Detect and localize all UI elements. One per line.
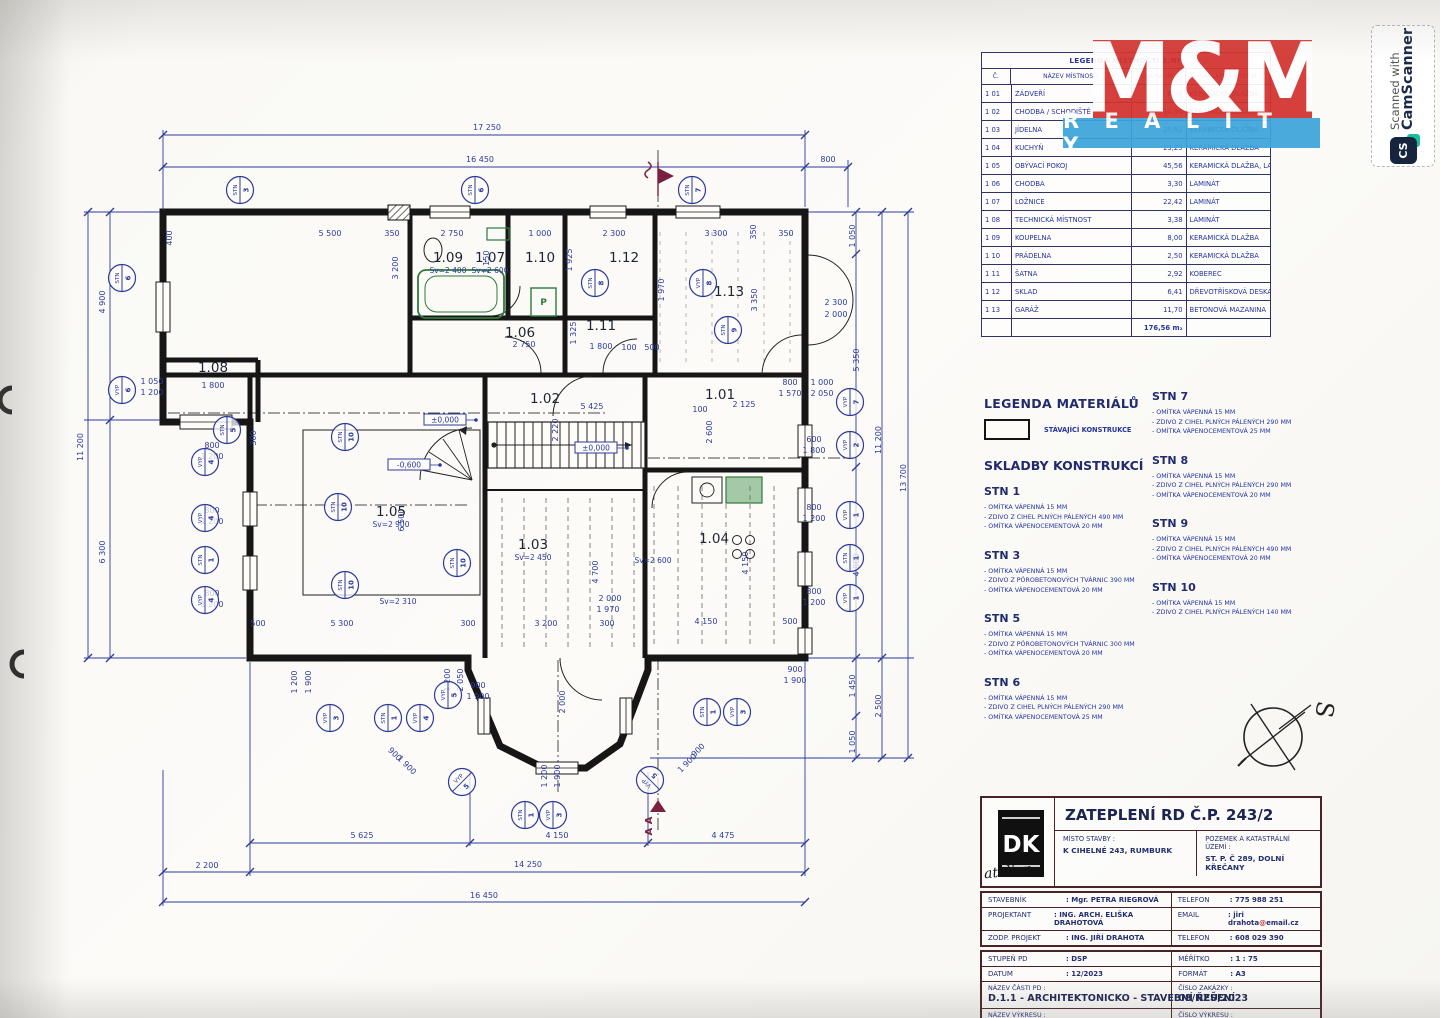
svg-text:VYP: VYP [198, 512, 204, 523]
dimension-label: 800 [782, 378, 797, 387]
designer-label: PROJEKTANT [988, 911, 1054, 927]
svg-text:1: 1 [208, 557, 216, 562]
svg-text:STN: STN [843, 552, 849, 563]
layer-name: STN 7 [1152, 390, 1342, 403]
opening-marker: VYP8 [690, 270, 717, 297]
opening-marker: VYP4 [192, 449, 219, 476]
svg-text:6: 6 [125, 275, 133, 280]
opening-marker: VYP5 [631, 761, 669, 799]
construction-layer-item: STN 8- OMÍTKA VÁPENNÁ 15 MM- ZDIVO Z CIH… [1152, 454, 1342, 501]
dimension-label: 2 300 [825, 298, 848, 307]
site-value: K CIHELNÉ 243, RUMBURK [1063, 846, 1188, 855]
email-value: : jiri drahota@email.cz [1228, 911, 1314, 927]
table-row: 1 05OBÝVACÍ POKOJ45,56KERAMICKÁ DLAŽBA, … [982, 157, 1270, 175]
dimension-label: 1 200 [803, 598, 826, 607]
dimension-label: 2 300 [603, 229, 626, 238]
room-height-label: Sv=2 400 [430, 266, 467, 275]
dimension-label: 6 300 [98, 541, 107, 564]
svg-text:STN: STN [331, 501, 337, 512]
construction-layer-item: STN 5- OMÍTKA VÁPENNÁ 15 MM- ZDIVO Z PÓR… [984, 612, 1149, 659]
height-note: Sv=2 600 [635, 556, 672, 565]
svg-text:2: 2 [853, 442, 861, 447]
parcel-label: POZEMEK A KATASTRÁLNÍ ÚZEMÍ : [1205, 835, 1312, 851]
dimension-label: 4 700 [591, 561, 600, 584]
dimension-label: 16 450 [470, 891, 498, 900]
table-row: 1 10PRÁDELNA2,50KERAMICKÁ DLAŽBA [982, 247, 1270, 265]
dimension-label: 13 700 [899, 464, 908, 492]
camscanner-text: CamScanner [1401, 28, 1417, 130]
client-label: STAVEBNÍK [988, 896, 1066, 904]
svg-text:VYP: VYP [413, 712, 419, 723]
svg-text:10: 10 [348, 580, 356, 590]
dimension-label: 4 150 [695, 617, 718, 626]
existing-construction-label: STÁVAJÍCÍ KONSTRUKCE [1044, 426, 1131, 434]
dimension-label: 5 625 [351, 831, 374, 840]
svg-text:STN: STN [518, 809, 524, 820]
dimension-label: 1 800 [803, 446, 826, 455]
svg-text:7: 7 [695, 187, 703, 192]
dimension-label: 1 900 [395, 754, 418, 777]
svg-text:STN: STN [115, 272, 121, 283]
svg-text:VYP: VYP [843, 439, 849, 450]
svg-text:STN: STN [450, 557, 456, 568]
table-row: 1 07LOŽNICE22,42LAMINÁT [982, 193, 1270, 211]
dimension-label: 2 000 [825, 310, 848, 319]
opening-marker: VYP6 [109, 377, 136, 404]
camscanner-icon: CS [1390, 137, 1417, 164]
room-label: 1.07 [475, 250, 505, 266]
height-note: Sv=2 310 [380, 597, 417, 606]
dimension-label: 2 220 [551, 419, 560, 442]
svg-text:7: 7 [853, 399, 861, 404]
dimension-label: 3 200 [535, 619, 558, 628]
svg-text:4: 4 [208, 515, 216, 520]
part-name-value: D.1.1 - ARCHITEKTONICKO - STAVEBNÍ ŘEŠEN… [988, 993, 1165, 1004]
level-label: ±0,000 [431, 416, 459, 425]
wall-marker: STN3 [227, 177, 254, 204]
svg-text:VYP: VYP [115, 384, 121, 395]
table-row: 1 06CHODBA3,30LAMINÁT [982, 175, 1270, 193]
dimension-label: 2 750 [441, 229, 464, 238]
project-title: ZATEPLENÍ RD Č.P. 243/2 [1055, 798, 1320, 831]
svg-text:4: 4 [208, 597, 216, 602]
north-label: S [1309, 699, 1339, 720]
dimension-label: 5 350 [852, 349, 861, 372]
boiler-symbol: P [540, 298, 547, 308]
wall-marker: STN1 [375, 705, 402, 732]
svg-text:10: 10 [348, 432, 356, 442]
room-label: 1.04 [699, 531, 729, 547]
opening-marker: VYP3 [724, 699, 751, 726]
reality-text: R E A L I T Y [1063, 109, 1320, 157]
dimension-label: 1 050 [848, 225, 857, 248]
construction-layer-item: STN 3- OMÍTKA VÁPENNÁ 15 MM- ZDIVO Z PÓR… [984, 549, 1149, 596]
dimension-label: 4 150 [546, 831, 569, 840]
dimension-label: 2 050 [811, 389, 834, 398]
svg-text:5: 5 [451, 692, 459, 697]
room-label: 1.05 [376, 504, 406, 520]
format-label: FORMÁT [1178, 970, 1230, 978]
dimension-label: 5 425 [581, 402, 604, 411]
dimension-label: 1 050 [141, 377, 164, 386]
dimension-label: 1 200 [540, 765, 549, 788]
svg-text:STN: STN [220, 424, 226, 435]
wall-marker: STN1 [192, 547, 219, 574]
dimension-label: 1 900 [553, 765, 562, 788]
dimension-label: 100 [621, 343, 636, 352]
dimension-label: 3 350 [750, 289, 759, 312]
format-value: : A3 [1230, 970, 1246, 978]
dimension-label: 3 200 [391, 257, 400, 280]
resp-designer-label: ZODP. PROJEKT [988, 934, 1066, 942]
room-label: 1.10 [525, 250, 555, 266]
construction-layer-item: STN 9- OMÍTKA VÁPENNÁ 15 MM- ZDIVO Z CIH… [1152, 517, 1342, 564]
dimension-label: 5 500 [319, 229, 342, 238]
drawing-number-label: ČÍSLO VÝKRESU : [1178, 1011, 1314, 1018]
svg-text:VYP: VYP [843, 396, 849, 407]
wall-marker: STN1 [837, 545, 864, 572]
svg-text:4: 4 [208, 459, 216, 464]
mm-reality-banner: R E A L I T Y [1063, 118, 1320, 148]
construction-layer-item: STN 7- OMÍTKA VÁPENNÁ 15 MM- ZDIVO Z CIH… [1152, 390, 1342, 437]
svg-text:VYP: VYP [323, 712, 329, 723]
layer-name: STN 1 [984, 485, 1149, 498]
dimension-label: 3 300 [705, 229, 728, 238]
room-label: 1.03 [518, 537, 548, 553]
table-row: 1 09KOUPELNA8,00KERAMICKÁ DLAŽBA [982, 229, 1270, 247]
opening-marker: VYP5 [443, 763, 481, 801]
order-number-label: ČÍSLO ZAKÁZKY : [1178, 984, 1314, 992]
dimension-label: 800 [806, 587, 821, 596]
construction-layer-item: STN 1- OMÍTKA VÁPENNÁ 15 MM- ZDIVO Z CIH… [984, 485, 1149, 532]
wall-marker: STN5 [214, 417, 241, 444]
mm-logo-text: M&M [1093, 42, 1312, 116]
section-letter: A A [644, 816, 655, 835]
order-number-value: 08/NZÚ/2023 [1178, 993, 1314, 1004]
room-label: 1.12 [609, 250, 639, 266]
svg-text:10: 10 [460, 558, 468, 568]
svg-text:STN: STN [338, 579, 344, 590]
title-block: DK atelier ZATEPLENÍ RD Č.P. 243/2 MÍSTO… [980, 796, 1322, 1018]
level-label: ±0,000 [582, 444, 610, 453]
layer-name: STN 6 [984, 676, 1149, 689]
room-label: 1.06 [505, 325, 535, 341]
punch-holes [0, 388, 24, 676]
materials-legend-title: LEGENDA MATERIÁLŮ [984, 396, 1139, 411]
designer-value: : ING. ARCH. ELIŠKA DRAHOTOVÁ [1054, 911, 1165, 927]
dimension-label: 350 [778, 229, 793, 238]
wall-marker: STN9 [715, 317, 742, 344]
svg-text:STN: STN [685, 184, 691, 195]
opening-marker: VYP3 [317, 705, 344, 732]
dimension-label: 800 [806, 503, 821, 512]
construction-layers-title: SKLADBY KONSTRUKCÍ [984, 458, 1149, 473]
opening-marker: VYP7 [837, 389, 864, 416]
svg-text:STN: STN [198, 554, 204, 565]
wall-marker: STN1 [512, 802, 539, 829]
svg-text:3: 3 [556, 812, 564, 817]
scale-label: MĚŘÍTKO [1178, 955, 1230, 963]
dimension-label: 300 [460, 619, 475, 628]
dimension-label: 300 [249, 430, 258, 445]
room-label: 1.09 [433, 250, 463, 266]
drawing-name-label: NÁZEV VÝKRESU : [988, 1011, 1165, 1018]
site-label: MÍSTO STAVBY : [1063, 835, 1188, 843]
dimension-label: 2 000 [599, 594, 622, 603]
dimension-label: 1 200 [141, 388, 164, 397]
svg-text:1: 1 [853, 512, 861, 517]
materials-legend: LEGENDA MATERIÁLŮ STÁVAJÍCÍ KONSTRUKCE [984, 396, 1139, 440]
svg-text:STN: STN [468, 184, 474, 195]
dk-atelier-script: atelier [983, 862, 1031, 883]
dimension-label: 2 600 [705, 421, 714, 444]
svg-text:VYP: VYP [198, 594, 204, 605]
mm-reality-logo: M&M [1093, 40, 1312, 118]
dimension-label: 2 125 [733, 400, 756, 409]
section-marks: A A [644, 162, 674, 835]
resp-designer-value: : ING. JIŘÍ DRAHOTA [1066, 934, 1144, 942]
layer-name: STN 8 [1152, 454, 1342, 467]
dimension-label: 900 [787, 665, 802, 674]
dimension-label: 1 970 [597, 605, 620, 614]
layer-name: STN 10 [1152, 581, 1342, 594]
svg-text:VYP: VYP [546, 809, 552, 820]
dimension-label: 500 [782, 617, 797, 626]
dimension-label: 2 500 [874, 695, 883, 718]
phone2-value: : 608 029 390 [1230, 934, 1284, 942]
room-height-label: Sv=2 450 [515, 553, 552, 562]
stage-label: STUPEŇ PD [988, 955, 1066, 963]
room-label: 1.01 [705, 387, 735, 403]
dimension-label: 1 900 [676, 752, 699, 775]
wall-marker: STN10 [332, 424, 359, 451]
room-height-label: Sv=2 900 [373, 520, 410, 529]
svg-text:STN: STN [700, 706, 706, 717]
svg-text:1: 1 [853, 595, 861, 600]
scanned-page: P17 25016 4508005 6254 1504 4752 20014 2… [0, 0, 1440, 1018]
dimension-label: 1 570 [779, 389, 802, 398]
svg-text:5: 5 [230, 427, 238, 432]
svg-text:3: 3 [333, 715, 341, 720]
svg-text:STN: STN [233, 184, 239, 195]
room-label: 1.02 [530, 391, 560, 407]
construction-layers-left: SKLADBY KONSTRUKCÍ STN 1- OMÍTKA VÁPENNÁ… [984, 458, 1149, 739]
opening-marker: VYP4 [407, 705, 434, 732]
svg-text:6: 6 [478, 187, 486, 192]
table-row: 1 12SKLAD6,41DŘEVOTŘÍSKOVÁ DESKA [982, 283, 1270, 301]
phone1-label: TELEFON [1178, 896, 1230, 904]
date-value: : 12/2023 [1066, 970, 1103, 978]
camscanner-badge: CS Scanned with CamScanner [1371, 25, 1435, 167]
svg-text:1: 1 [391, 715, 399, 720]
svg-text:STN: STN [721, 324, 727, 335]
wall-marker: STN6 [462, 177, 489, 204]
svg-text:3: 3 [243, 187, 251, 192]
room-label: 1.08 [198, 360, 228, 376]
dimension-label: 350 [749, 224, 758, 239]
dimension-label: 800 [820, 155, 835, 164]
dimension-label: 500 [250, 619, 265, 628]
phone2-label: TELEFON [1178, 934, 1230, 942]
dimension-label: 1 200 [803, 514, 826, 523]
dimension-label: 1 000 [529, 229, 552, 238]
dimension-label: 300 [599, 619, 614, 628]
room-label: 1.13 [714, 284, 744, 300]
dimension-label: 1 000 [811, 378, 834, 387]
svg-text:VYP: VYP [696, 277, 702, 288]
svg-text:6: 6 [125, 387, 133, 392]
table-row: 1 11ŠATNA2,92KOBEREC [982, 265, 1270, 283]
table-row: 1 08TECHNICKÁ MÍSTNOST3,38LAMINÁT [982, 211, 1270, 229]
dimension-label: 1 970 [657, 279, 666, 302]
svg-text:8: 8 [706, 280, 714, 285]
room-table-total-row: 176,56 m₂ [982, 319, 1270, 336]
svg-text:4: 4 [423, 715, 431, 720]
wall-marker: STN10 [444, 550, 471, 577]
room-height-label: Sv=2 600 [472, 266, 509, 275]
dimension-label: 11 200 [874, 426, 883, 454]
wall-marker: STN1 [694, 699, 721, 726]
dimension-label: 14 250 [514, 860, 542, 869]
svg-text:9: 9 [731, 327, 739, 332]
svg-text:VYP: VYP [843, 592, 849, 603]
dimension-label: 1 450 [848, 675, 857, 698]
email-label: EMAIL [1178, 911, 1228, 927]
dimension-label: 2 750 [513, 340, 536, 349]
dimension-label: 1 900 [467, 692, 490, 701]
opening-marker: VYP2 [837, 432, 864, 459]
dimension-label: 1 200 [290, 671, 299, 694]
construction-layer-item: STN 10- OMÍTKA VÁPENNÁ 15 MM- ZDIVO Z CI… [1152, 581, 1342, 618]
opening-marker: VYP3 [540, 802, 567, 829]
svg-text:1: 1 [710, 709, 718, 714]
svg-text:8: 8 [598, 280, 606, 285]
dimension-label: 1 325 [569, 322, 578, 345]
layer-name: STN 3 [984, 549, 1149, 562]
svg-text:10: 10 [341, 502, 349, 512]
dimension-label: 1 050 [848, 731, 857, 754]
dimension-label: 600 [806, 435, 821, 444]
svg-text:STN: STN [338, 431, 344, 442]
layer-name: STN 9 [1152, 517, 1342, 530]
wall-marker: STN7 [679, 177, 706, 204]
dimension-label: 1 900 [784, 676, 807, 685]
svg-text:VYP: VYP [730, 706, 736, 717]
dimension-label: 500 [644, 343, 659, 352]
dimension-label: 2 200 [196, 861, 219, 870]
dimension-label: 2 000 [558, 691, 567, 714]
dimension-label: 1 900 [304, 671, 313, 694]
svg-text:1: 1 [853, 555, 861, 560]
svg-text:3: 3 [740, 709, 748, 714]
dimension-label: 4 475 [712, 831, 735, 840]
dimension-label: 4 900 [98, 291, 107, 314]
wall-marker: STN6 [109, 265, 136, 292]
svg-text:1: 1 [528, 812, 536, 817]
parcel-value: ST. P. Č 289, DOLNÍ KŘEČANY [1205, 854, 1312, 872]
dimension-label: 1 925 [565, 249, 574, 272]
existing-construction-swatch [984, 419, 1030, 440]
dimension-label: 11 200 [76, 433, 85, 461]
dimension-label: 5 300 [331, 619, 354, 628]
stage-value: : DSP [1066, 955, 1087, 963]
construction-layers-right: STN 7- OMÍTKA VÁPENNÁ 15 MM- ZDIVO Z CIH… [1152, 390, 1342, 635]
level-label: -0,600 [397, 461, 421, 470]
dimension-label: 4 150 [741, 552, 750, 575]
svg-text:VYP: VYP [843, 509, 849, 520]
opening-marker: VYP1 [837, 585, 864, 612]
phone1-value: : 775 988 251 [1230, 896, 1284, 904]
dimension-label: 1 800 [590, 342, 613, 351]
wall-marker: STN10 [332, 572, 359, 599]
svg-text:STN: STN [381, 712, 387, 723]
svg-text:VYP: VYP [441, 689, 447, 700]
dimension-label: 1 800 [202, 381, 225, 390]
client-value: : Mgr. PETRA RIEGROVÁ [1066, 896, 1159, 904]
dimension-label: 350 [384, 229, 399, 238]
wall-marker: STN8 [582, 270, 609, 297]
opening-marker: VYP4 [192, 587, 219, 614]
opening-marker: VYP4 [192, 505, 219, 532]
date-label: DATUM [988, 970, 1066, 978]
construction-layer-item: STN 6- OMÍTKA VÁPENNÁ 15 MM- ZDIVO Z CIH… [984, 676, 1149, 723]
dimension-label: 900 [470, 681, 485, 690]
dimension-label: 16 450 [466, 155, 494, 164]
opening-marker: VYP1 [837, 502, 864, 529]
table-row: 1 13GARÁŽ11,70BETONOVÁ MAZANINA [982, 301, 1270, 319]
layer-name: STN 5 [984, 612, 1149, 625]
dimension-label: 17 250 [473, 123, 501, 132]
north-compass: S [1238, 699, 1340, 770]
scale-value: : 1 : 75 [1230, 955, 1258, 963]
dimension-label: 400 [165, 230, 174, 245]
wall-marker: STN10 [325, 494, 352, 521]
dimension-label: 100 [692, 405, 707, 414]
part-name-label: NÁZEV ČÁSTI PD : [988, 984, 1165, 992]
opening-marker: VYP5 [435, 682, 462, 709]
svg-text:STN: STN [588, 277, 594, 288]
svg-text:VYP: VYP [198, 456, 204, 467]
room-label: 1.11 [586, 318, 616, 334]
